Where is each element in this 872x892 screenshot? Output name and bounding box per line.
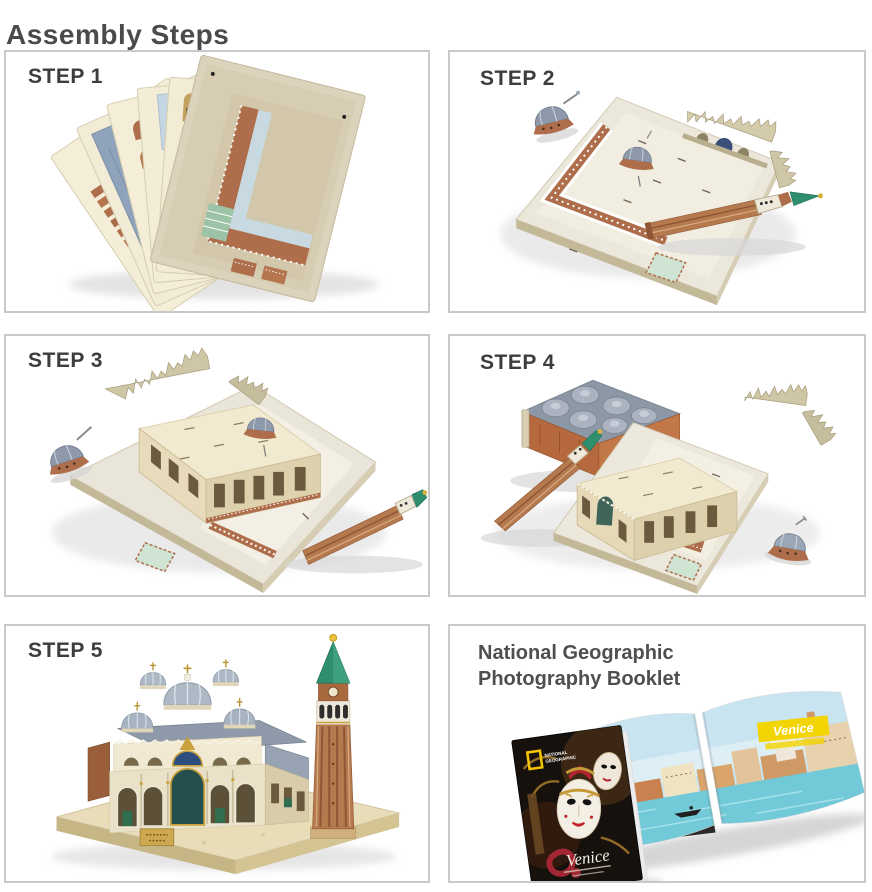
plaque: [140, 829, 173, 846]
step-3-panel: STEP 3: [4, 334, 430, 597]
campanile-tower: [311, 634, 356, 838]
booklet-heading-line1: National Geographic: [478, 640, 680, 666]
step-1-panel: STEP 1: [4, 50, 430, 313]
booklet-heading: National Geographic Photography Booklet: [478, 640, 680, 692]
step-3-label: STEP 3: [28, 349, 103, 373]
step-2-panel: STEP 2: [448, 50, 866, 313]
step-1-label: STEP 1: [28, 65, 103, 89]
step-2-label: STEP 2: [480, 67, 555, 91]
step-1-photo: [6, 52, 428, 311]
step-4-label: STEP 4: [480, 351, 555, 375]
punch-out-sheets: [50, 55, 365, 311]
basilica: [88, 659, 309, 845]
domes: [121, 659, 255, 732]
step-4-panel: STEP 4: [448, 334, 866, 597]
booklet-panel: Venice: [448, 624, 866, 883]
gothic-crest-strip: [740, 378, 844, 448]
booklet-heading-line2: Photography Booklet: [478, 666, 680, 692]
step-5-photo: [6, 626, 428, 881]
step-3-photo: [6, 336, 428, 595]
page-title: Assembly Steps: [6, 19, 229, 51]
step-5-label: STEP 5: [28, 639, 103, 663]
loose-dome-piece: [526, 90, 590, 145]
step-5-panel: STEP 5: [4, 624, 430, 883]
